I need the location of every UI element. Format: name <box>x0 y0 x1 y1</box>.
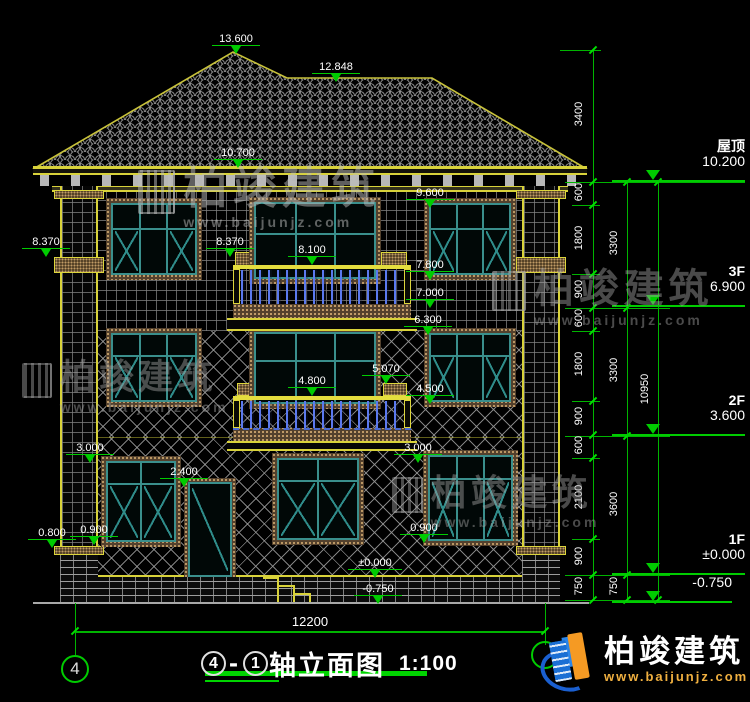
elevation-marker: 4.800 <box>288 375 336 396</box>
floor-line <box>612 590 732 603</box>
elevation-marker: 7.800 <box>406 259 454 280</box>
pilaster-left-capital <box>54 257 104 273</box>
pilaster-right <box>522 186 560 603</box>
elevation-value: 13.600 <box>219 33 253 45</box>
elevation-marker: 12.848 <box>312 61 360 82</box>
axis-bubble-4: 4 <box>61 655 89 683</box>
watermark: 柏竣建筑 www.baijunjz.com <box>492 268 713 328</box>
elevation-marker: 3.000 <box>66 442 114 463</box>
entry-door <box>184 478 236 577</box>
elevation-marker: 0.900 <box>70 524 118 545</box>
floor-level-2f: 2F 3.600 <box>612 393 745 436</box>
marker-triangle-icon <box>179 479 189 487</box>
marker-triangle-icon <box>423 327 433 335</box>
ground-line <box>33 602 589 604</box>
window-x-brace <box>281 483 315 535</box>
dim-value: 750 <box>573 564 585 608</box>
elevation-marker: 2.400 <box>160 466 208 487</box>
marker-triangle-icon <box>381 376 391 384</box>
watermark-block: 柏竣建筑 www.baijunjz.com <box>183 166 380 230</box>
floor-level-roof: 屋顶 10.200 <box>612 139 745 182</box>
dim-value: 3600 <box>608 482 620 526</box>
balcony-2f-slab <box>227 441 417 451</box>
balcony-rail <box>233 265 411 269</box>
elevation-marker: 5.070 <box>362 363 410 384</box>
elevation-value: 8.370 <box>32 236 60 248</box>
watermark: 柏竣建筑 www.baijunjz.com <box>392 474 599 530</box>
elevation-value: 10.700 <box>221 147 255 159</box>
door-swing-line <box>192 488 229 572</box>
marker-triangle-icon <box>646 170 660 180</box>
elevation-value: 5.070 <box>372 363 400 375</box>
marker-triangle-icon <box>331 74 341 82</box>
elevation-value: 6.300 <box>414 314 442 326</box>
window-x-brace <box>321 483 355 535</box>
window-x-brace <box>486 357 508 398</box>
marker-triangle-icon <box>646 591 660 601</box>
elevation-value: -0.750 <box>362 583 393 595</box>
window-x-brace <box>486 231 508 271</box>
marker-triangle-icon <box>85 455 95 463</box>
logo-building-icon <box>540 625 604 695</box>
drawing-title: 4 - 1 轴立面图 1:100 <box>200 644 458 683</box>
cad-elevation-drawing: 13.600 12.848 10.700 9.600 8.370 8.370 8… <box>0 0 750 702</box>
pilaster-left-base <box>60 555 98 603</box>
elevation-marker: 6.300 <box>404 314 452 335</box>
floor-elevation: ±0.000 <box>612 547 745 562</box>
watermark: 柏竣建筑 www.baijunjz.com <box>22 360 229 415</box>
elevation-value: ±0.000 <box>358 557 392 569</box>
watermark-text: 柏竣建筑 <box>60 360 229 397</box>
watermark: 柏竣建筑 www.baijunjz.com <box>138 166 381 230</box>
elevation-value: 4.800 <box>298 375 326 387</box>
title-axis-start: 4 <box>201 651 226 676</box>
elevation-marker: 4.500 <box>406 383 454 404</box>
balcony-band <box>233 304 411 318</box>
watermark-building-icon <box>22 363 52 398</box>
balcony-balusters <box>241 401 403 428</box>
watermark-block: 柏竣建筑 www.baijunjz.com <box>431 474 600 530</box>
balcony-2f <box>233 396 411 441</box>
balcony-3f <box>233 265 411 318</box>
balcony-balusters <box>241 270 403 304</box>
watermark-url: www.baijunjz.com <box>60 399 229 415</box>
balcony-band <box>233 428 411 441</box>
title-axis-end: 1 <box>243 651 268 676</box>
window-mullion <box>482 205 484 273</box>
watermark-text: 柏竣建筑 <box>534 268 713 310</box>
elevation-value: 12.848 <box>319 61 353 73</box>
entry-step <box>263 577 279 603</box>
marker-triangle-icon <box>373 596 383 604</box>
window-mullion <box>317 460 319 538</box>
marker-triangle-icon <box>41 249 51 257</box>
watermark-block: 柏竣建筑 www.baijunjz.com <box>60 360 229 415</box>
elevation-value: 7.000 <box>416 287 444 299</box>
floor-name: 1F <box>612 532 745 547</box>
door-leaf <box>188 482 232 577</box>
elevation-value: 3.000 <box>76 442 104 454</box>
floor-elevation: 3.600 <box>612 408 745 423</box>
marker-triangle-icon <box>413 455 423 463</box>
window-mullion <box>456 205 458 273</box>
floor-line <box>612 169 745 182</box>
window-x-brace <box>144 486 172 538</box>
roof-outline <box>35 52 585 168</box>
balcony-rail <box>233 396 411 400</box>
floor-name: 屋顶 <box>612 139 745 154</box>
watermark-text: 柏竣建筑 <box>431 474 600 512</box>
dim-value: 3300 <box>608 221 620 265</box>
elevation-value: 8.370 <box>216 236 244 248</box>
logo-text-block: 柏竣建筑 www.baijunjz.com <box>604 636 748 684</box>
window-mullion <box>456 335 458 400</box>
marker-triangle-icon <box>425 200 435 208</box>
elevation-marker: 9.600 <box>406 187 454 208</box>
window-mullion <box>140 463 142 540</box>
window-transom <box>256 360 374 362</box>
title-text: 轴立面图 <box>269 644 385 683</box>
elevation-marker: 7.000 <box>406 287 454 308</box>
watermark-building-icon <box>138 170 175 214</box>
window-transom <box>256 233 374 235</box>
pilaster-right-base-cap <box>516 546 566 555</box>
axis-number: 4 <box>70 659 79 679</box>
marker-triangle-icon <box>425 300 435 308</box>
pilaster-right-top-cap <box>516 190 566 199</box>
elevation-marker: 8.370 <box>22 236 70 257</box>
marker-triangle-icon <box>425 396 435 404</box>
dim-value: 3400 <box>573 92 585 136</box>
dim-value: 3300 <box>608 348 620 392</box>
entry-step <box>279 585 295 603</box>
elevation-marker: 13.600 <box>212 33 260 54</box>
title-scale: 1:100 <box>399 652 458 676</box>
logo-name: 柏竣建筑 <box>604 636 748 669</box>
balcony-3f-slab <box>227 318 417 331</box>
window-glass <box>277 458 359 540</box>
marker-triangle-icon <box>89 537 99 545</box>
balcony-3f-right-capital <box>381 252 407 266</box>
floor-name: 2F <box>612 393 745 408</box>
elevation-value: 4.500 <box>416 383 444 395</box>
watermark-url: www.baijunjz.com <box>183 214 380 230</box>
elevation-value: 0.800 <box>38 527 66 539</box>
elevation-marker: 8.100 <box>288 244 336 265</box>
marker-triangle-icon <box>370 570 380 578</box>
balcony-2f-right-planter <box>383 383 407 396</box>
elevation-marker: 8.370 <box>206 236 254 257</box>
marker-triangle-icon <box>307 388 317 396</box>
elevation-value: 2.400 <box>170 466 198 478</box>
marker-triangle-icon <box>231 46 241 54</box>
elevation-marker: ±0.000 <box>348 557 402 578</box>
floor-elevation: -0.750 <box>612 575 732 590</box>
elevation-value: 9.600 <box>416 187 444 199</box>
marker-triangle-icon <box>47 540 57 548</box>
marker-triangle-icon <box>425 272 435 280</box>
watermark-building-icon <box>392 477 423 513</box>
floor-elevation: 10.200 <box>612 154 745 169</box>
window-1f-center <box>272 453 364 545</box>
dim-value: 1800 <box>573 216 585 260</box>
floor-level-ground: -0.750 <box>612 575 732 603</box>
window-mullion <box>482 335 484 400</box>
floor-level-1f: 1F ±0.000 <box>612 532 745 575</box>
window-transom <box>431 228 509 230</box>
elevation-marker: -0.750 <box>354 583 402 604</box>
window-x-brace <box>170 231 193 271</box>
bottom-dim-value: 12200 <box>280 614 340 629</box>
watermark-building-icon <box>492 271 526 311</box>
elevation-marker: 3.000 <box>394 442 442 463</box>
balcony-post <box>404 400 411 428</box>
marker-triangle-icon <box>646 424 660 434</box>
company-logo: 柏竣建筑 www.baijunjz.com <box>540 622 750 698</box>
elevation-marker: 0.800 <box>28 527 76 548</box>
balcony-post <box>233 269 240 304</box>
watermark-block: 柏竣建筑 www.baijunjz.com <box>534 268 713 328</box>
marker-triangle-icon <box>646 563 660 573</box>
watermark-text: 柏竣建筑 <box>183 166 380 212</box>
floor-line <box>612 423 745 436</box>
logo-url: www.baijunjz.com <box>604 669 748 684</box>
watermark-url: www.baijunjz.com <box>431 514 600 530</box>
marker-triangle-icon <box>307 257 317 265</box>
dim-value: 600 <box>573 170 585 214</box>
elevation-value: 0.900 <box>80 524 108 536</box>
marker-triangle-icon <box>225 249 235 257</box>
watermark-url: www.baijunjz.com <box>534 312 713 328</box>
dim-value: 1800 <box>573 342 585 386</box>
window-x-brace <box>115 231 138 271</box>
dim-extension-line <box>560 50 601 51</box>
title-separator: - <box>229 648 240 679</box>
dim-value: 600 <box>573 423 585 467</box>
elevation-value: 8.100 <box>298 244 326 256</box>
bottom-dim-line <box>75 631 545 633</box>
elevation-value: 7.800 <box>416 259 444 271</box>
roof <box>25 40 595 180</box>
pilaster-left-top-cap <box>54 190 104 199</box>
elevation-value: 3.000 <box>404 442 432 454</box>
pilaster-right-base <box>522 555 560 603</box>
marker-triangle-icon <box>419 535 429 543</box>
balcony-post <box>233 400 240 428</box>
